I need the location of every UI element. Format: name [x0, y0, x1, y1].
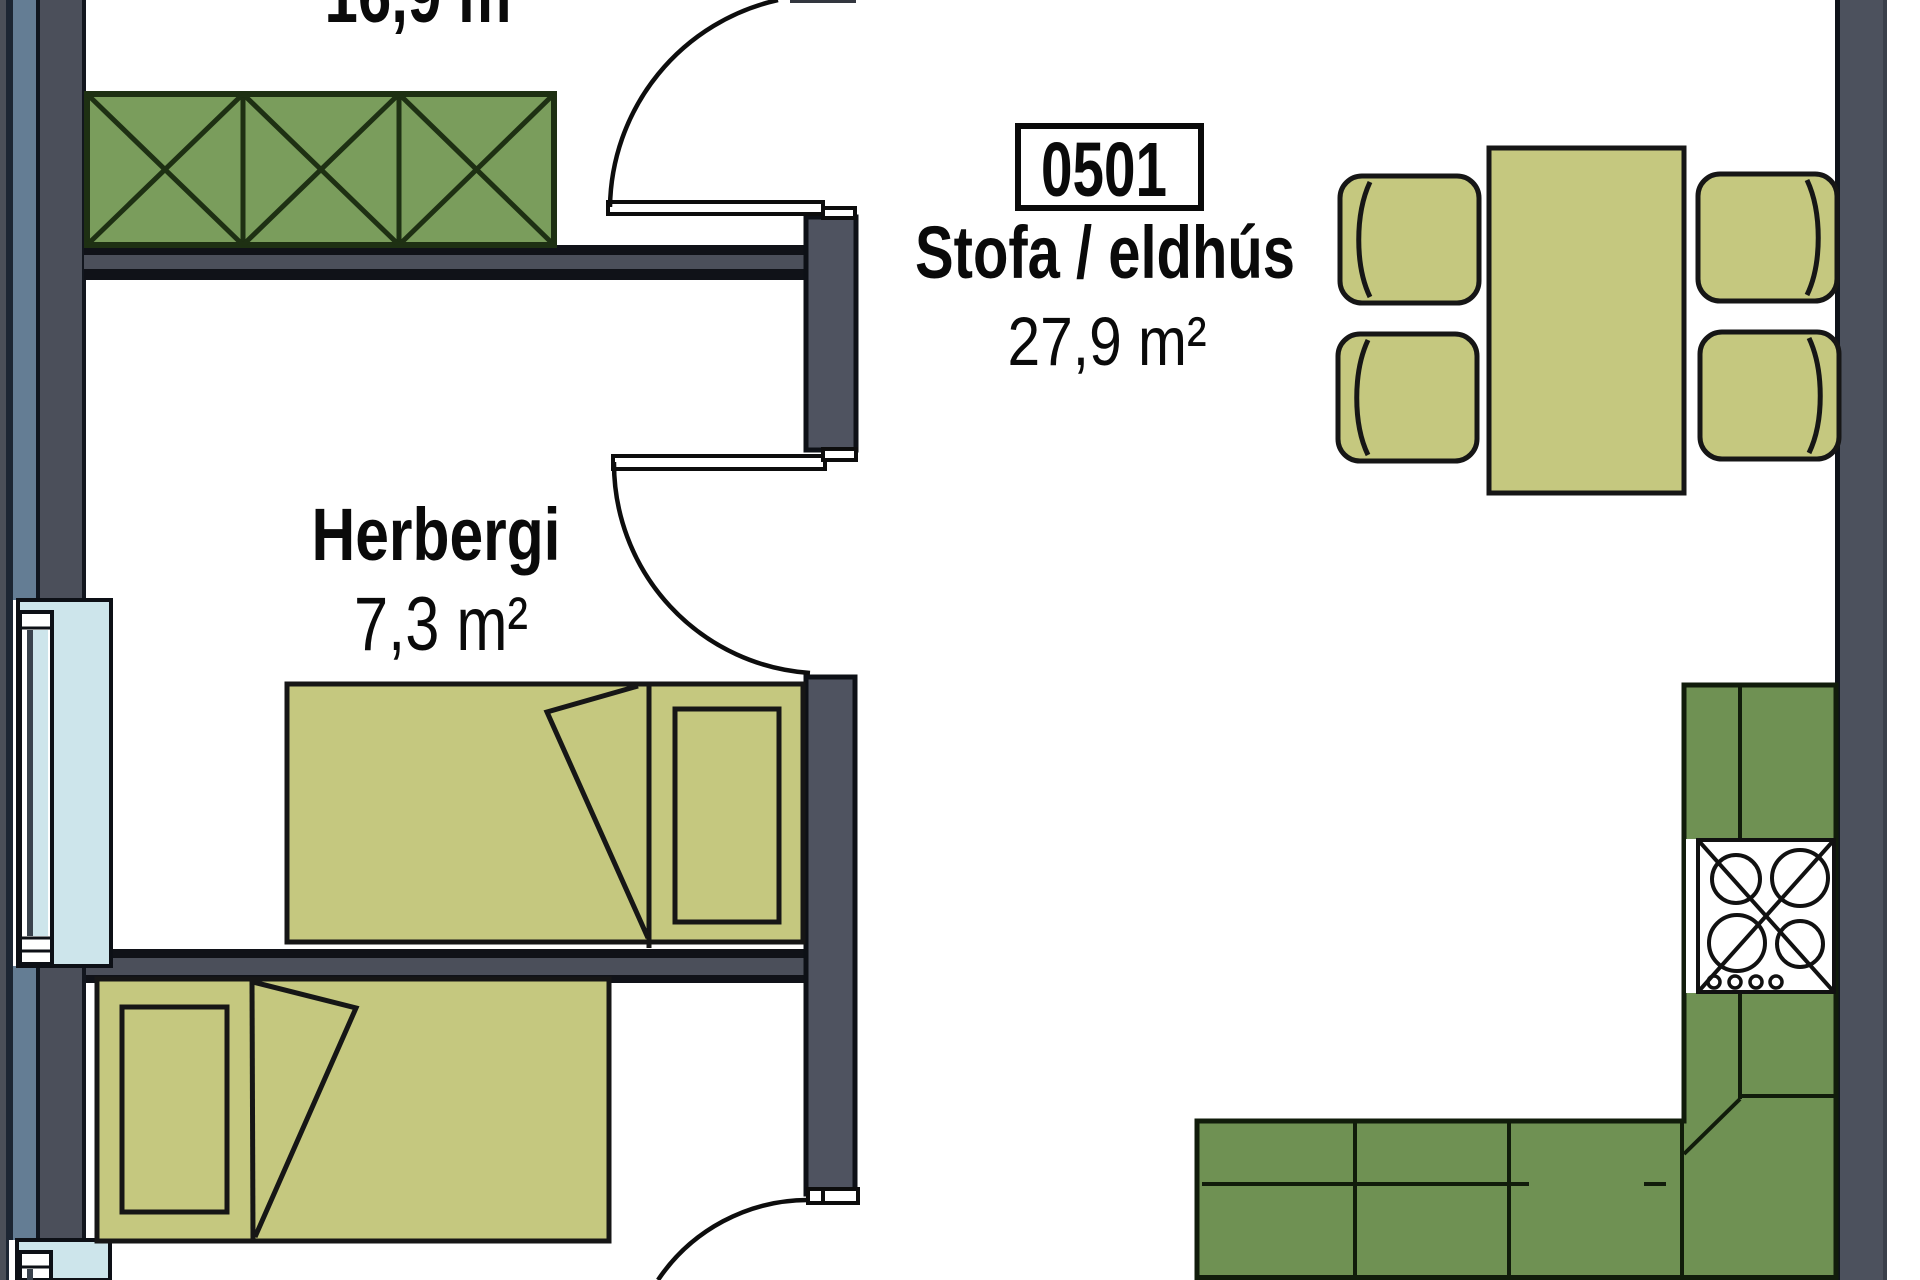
svg-text:Stofa / eldhús: Stofa / eldhús: [915, 211, 1295, 294]
svg-text:0501: 0501: [1041, 127, 1167, 213]
svg-text:Herbergi: Herbergi: [312, 493, 561, 576]
svg-text:27,9 m²: 27,9 m²: [1008, 303, 1207, 380]
svg-text:7,3 m²: 7,3 m²: [354, 582, 528, 667]
svg-text:16,9 m²: 16,9 m²: [325, 0, 532, 39]
